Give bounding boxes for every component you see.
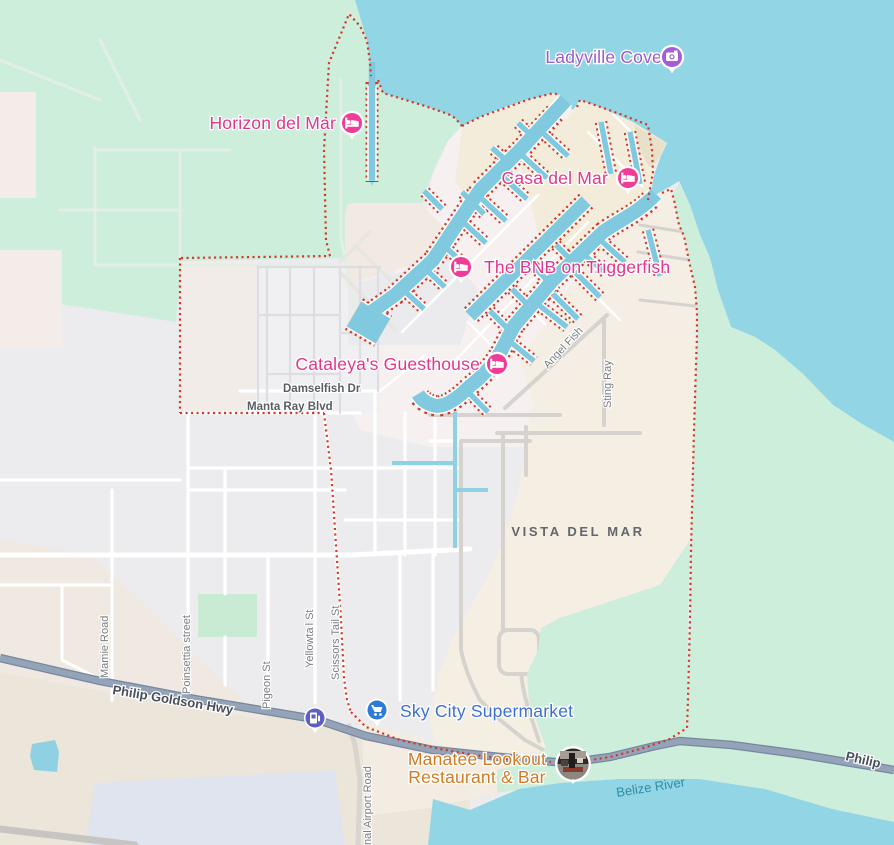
svg-text:Horizon del Mar: Horizon del Mar: [209, 113, 336, 133]
svg-text:Cataleya's Guesthouse: Cataleya's Guesthouse: [295, 354, 480, 374]
svg-text:Ladyville Cove: Ladyville Cove: [545, 47, 662, 67]
svg-text:The BNB on Triggerfish: The BNB on Triggerfish: [484, 257, 670, 277]
svg-text:Restaurant & Bar: Restaurant & Bar: [408, 767, 545, 787]
svg-text:VISTA DEL MAR: VISTA DEL MAR: [511, 524, 644, 539]
svg-text:Casa del Mar: Casa del Mar: [502, 168, 608, 188]
svg-text:Pigeon St: Pigeon St: [261, 661, 273, 709]
svg-text:Manta Ray Blvd: Manta Ray Blvd: [247, 401, 333, 413]
svg-text:Sky City Supermarket: Sky City Supermarket: [400, 701, 573, 721]
svg-text:Damselfish Dr: Damselfish Dr: [283, 383, 361, 395]
svg-text:Scissors Tail St: Scissors Tail St: [330, 606, 342, 680]
svg-text:Mamie Road: Mamie Road: [99, 616, 111, 678]
svg-text:Manatee Lookout: Manatee Lookout: [408, 749, 546, 769]
svg-text:Yellowtal St: Yellowtal St: [304, 610, 316, 668]
svg-text:nal Airport Road: nal Airport Road: [362, 766, 374, 845]
svg-text:Poinsettia street: Poinsettia street: [181, 615, 193, 694]
svg-text:Sting Ray: Sting Ray: [602, 360, 614, 408]
